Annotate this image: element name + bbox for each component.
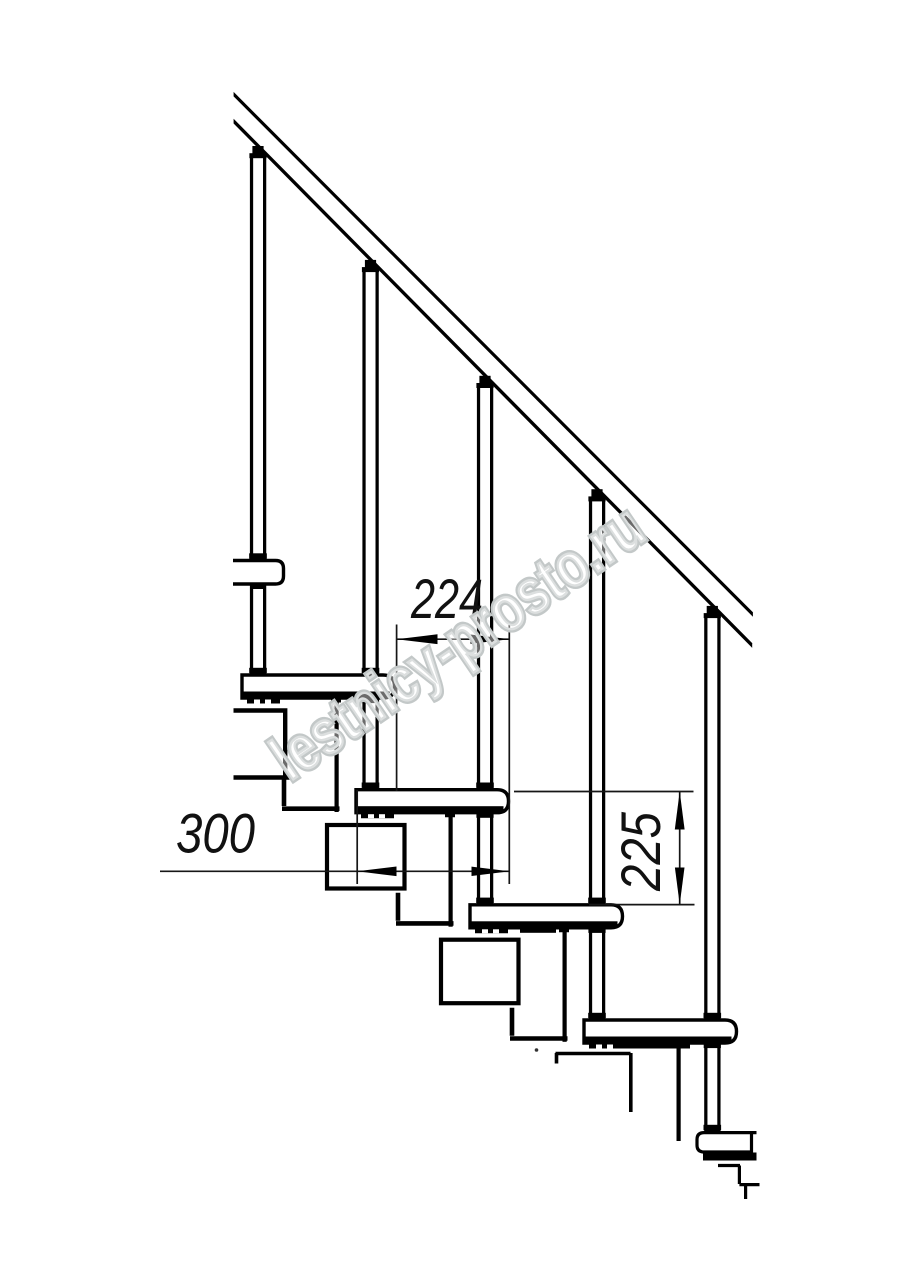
svg-text:225: 225	[609, 811, 672, 892]
svg-text:300: 300	[176, 802, 255, 865]
